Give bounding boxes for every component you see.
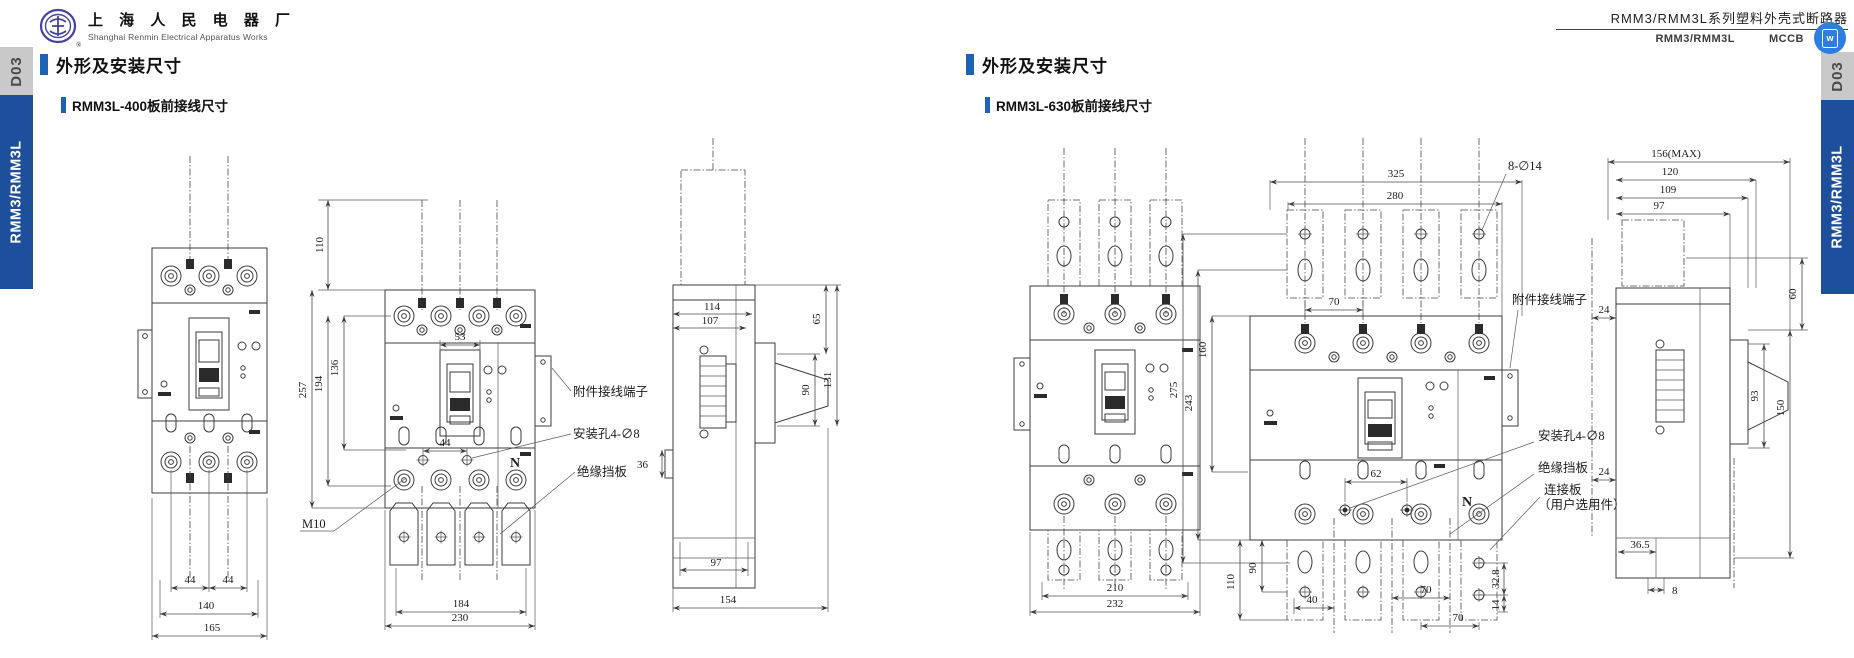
dim-width-inner: 140 — [198, 600, 215, 612]
series-tab-left: RMM3/RMM3L — [0, 95, 33, 289]
mounting-hole-label: 安装孔4-∅8 — [573, 426, 640, 441]
accessory-terminal-label: 附件接线端子 — [573, 384, 648, 399]
insulation-plate-label: 绝缘挡板 — [577, 464, 628, 479]
dim-depth-2: 107 — [702, 315, 719, 327]
dim-depth-1: 114 — [704, 301, 721, 313]
section-header-right: 外形及安装尺寸 — [966, 52, 1108, 77]
svg-text:®: ® — [76, 41, 82, 49]
drawing-title-left: RMM3L-400板前接线尺寸 — [61, 95, 228, 115]
company-logo-icon: ® — [36, 5, 84, 51]
neutral-pole-label: N — [510, 456, 520, 471]
terminal-thread-label: M10 — [302, 517, 326, 531]
dim-plate-span-r: 325 — [1388, 168, 1405, 180]
dim-handle-width: 53 — [455, 331, 467, 343]
dim-pole-pitch-1: 44 — [185, 574, 197, 586]
dim-width-overall-r: 232 — [1107, 598, 1124, 610]
dim-height-overall-r: 275 — [1168, 381, 1180, 398]
section-title: 外形及安装尺寸 — [982, 52, 1108, 77]
dim-h-total: 131 — [822, 372, 834, 389]
dim-h-mid-r: 93 — [1749, 390, 1761, 402]
dim-wire-length: 110 — [314, 236, 326, 253]
product-series: RMM3/RMM3L — [1655, 33, 1735, 45]
dim-d3: 97 — [1654, 200, 1666, 212]
doc-badge-icon: w — [1814, 22, 1846, 54]
series-tab-label: RMM3/RMM3L — [9, 140, 25, 243]
dim-height-mid: 194 — [313, 375, 325, 392]
company-name: 上 海 人 民 电 器 厂 Shanghai Renmin Electrical… — [88, 9, 296, 42]
section-title: 外形及安装尺寸 — [56, 52, 182, 77]
section-header-left: 外形及安装尺寸 — [40, 52, 182, 77]
left-front-view: 44 44 140 165 — [138, 156, 267, 640]
dim-plate-hole-spacing: 32.8 — [1490, 569, 1502, 589]
drawing-title: RMM3L-630板前接线尺寸 — [996, 95, 1152, 115]
dim-plate-hole: 90 — [1247, 562, 1259, 574]
left-drawing-set: 44 44 140 165 53 — [36, 118, 846, 658]
dim-edge-r: 8 — [1672, 585, 1678, 597]
left-side-view: 114 107 90 65 131 36 97 154 — [637, 138, 841, 612]
dim-depth-lower: 97 — [711, 557, 723, 569]
product-title: RMM3/RMM3L系列塑料外壳式断路器 — [1556, 8, 1848, 30]
dim-height-mid-r: 243 — [1183, 394, 1195, 411]
section-bullet — [40, 54, 48, 75]
drawing-title: RMM3L-400板前接线尺寸 — [72, 95, 228, 115]
dim-width-overall-4p: 230 — [452, 612, 469, 624]
hole-spec-label: 8-∅14 — [1508, 159, 1543, 173]
dim-plate-hole-edge: 14 — [1490, 599, 1502, 611]
dim-off-top: 24 — [1599, 304, 1611, 316]
dim-pole-pitch-2: 44 — [223, 574, 235, 586]
doc-letter: w — [1822, 29, 1838, 48]
dim-step-r: 36.5 — [1630, 539, 1650, 551]
dim-h-total-r: 150 — [1775, 399, 1787, 416]
page-tab-label: D03 — [8, 56, 25, 87]
connector-plate-label-1: 连接板 — [1544, 482, 1582, 497]
section-bullet — [966, 54, 974, 75]
dim-hole-spacing-r: 62 — [1371, 468, 1382, 480]
company-name-cn: 上 海 人 民 电 器 厂 — [88, 9, 296, 30]
page-tab-label: D03 — [1829, 61, 1846, 92]
dim-depth-overall: 154 — [720, 594, 737, 606]
dim-max: 156(MAX) — [1651, 148, 1701, 160]
dim-d2: 109 — [1660, 184, 1677, 196]
drawing-bullet — [985, 97, 990, 113]
left-four-pole-view: 53 44 N 110 257 194 136 M10 184 230 附件接线… — [297, 200, 648, 630]
product-type: MCCB — [1769, 33, 1804, 45]
dim-handle: 90 — [800, 384, 812, 396]
dim-hole-spacing: 44 — [440, 437, 452, 449]
mounting-hole-label-r: 安装孔4-∅8 — [1538, 428, 1605, 443]
dim-off-mid: 24 — [1599, 466, 1611, 478]
page-tab-right: D03 — [1821, 52, 1854, 100]
dim-wire-offset: 40 — [1307, 594, 1319, 606]
dim-width-overall: 165 — [204, 622, 221, 634]
page-tab-left: D03 — [0, 47, 33, 95]
insulation-plate-label-r: 绝缘挡板 — [1538, 460, 1589, 475]
neutral-pole-label-r: N — [1462, 495, 1472, 510]
right-drawing-set: 210 232 325 280 8-∅14 70 — [850, 118, 1854, 658]
right-side-view: 156(MAX) 120 109 97 24 24 60 93 150 — [1592, 148, 1808, 597]
dim-h-top-r: 60 — [1787, 288, 1799, 300]
product-header: RMM3/RMM3L系列塑料外壳式断路器 RMM3/RMM3L MCCB — [1556, 8, 1848, 45]
drawing-bullet — [61, 97, 66, 113]
dim-height-overall: 257 — [297, 381, 309, 398]
dim-pitch-b: 70 — [1453, 612, 1465, 624]
dim-plate-span: 184 — [453, 598, 470, 610]
dim-width-inner-r: 210 — [1107, 582, 1124, 594]
dim-height-inner: 136 — [329, 359, 341, 376]
dim-step: 36 — [637, 459, 649, 471]
drawing-title-right: RMM3L-630板前接线尺寸 — [985, 95, 1152, 115]
dim-height-upper-r: 160 — [1197, 341, 1209, 358]
connector-plate-label-2: （用户选用件） — [1538, 497, 1626, 512]
dim-pole-pitch-r: 70 — [1329, 296, 1341, 308]
company-name-en: Shanghai Renmin Electrical Apparatus Wor… — [88, 32, 296, 42]
right-four-pole-view: 325 280 8-∅14 70 62 N — [1168, 138, 1626, 633]
dim-width-inner-4p: 280 — [1387, 190, 1404, 202]
dim-d1: 120 — [1662, 166, 1679, 178]
dim-h-top: 65 — [811, 313, 823, 325]
accessory-terminal-label-r: 附件接线端子 — [1512, 292, 1587, 307]
dim-plate-len: 110 — [1225, 573, 1237, 590]
dim-pitch-a: 70 — [1421, 584, 1433, 596]
